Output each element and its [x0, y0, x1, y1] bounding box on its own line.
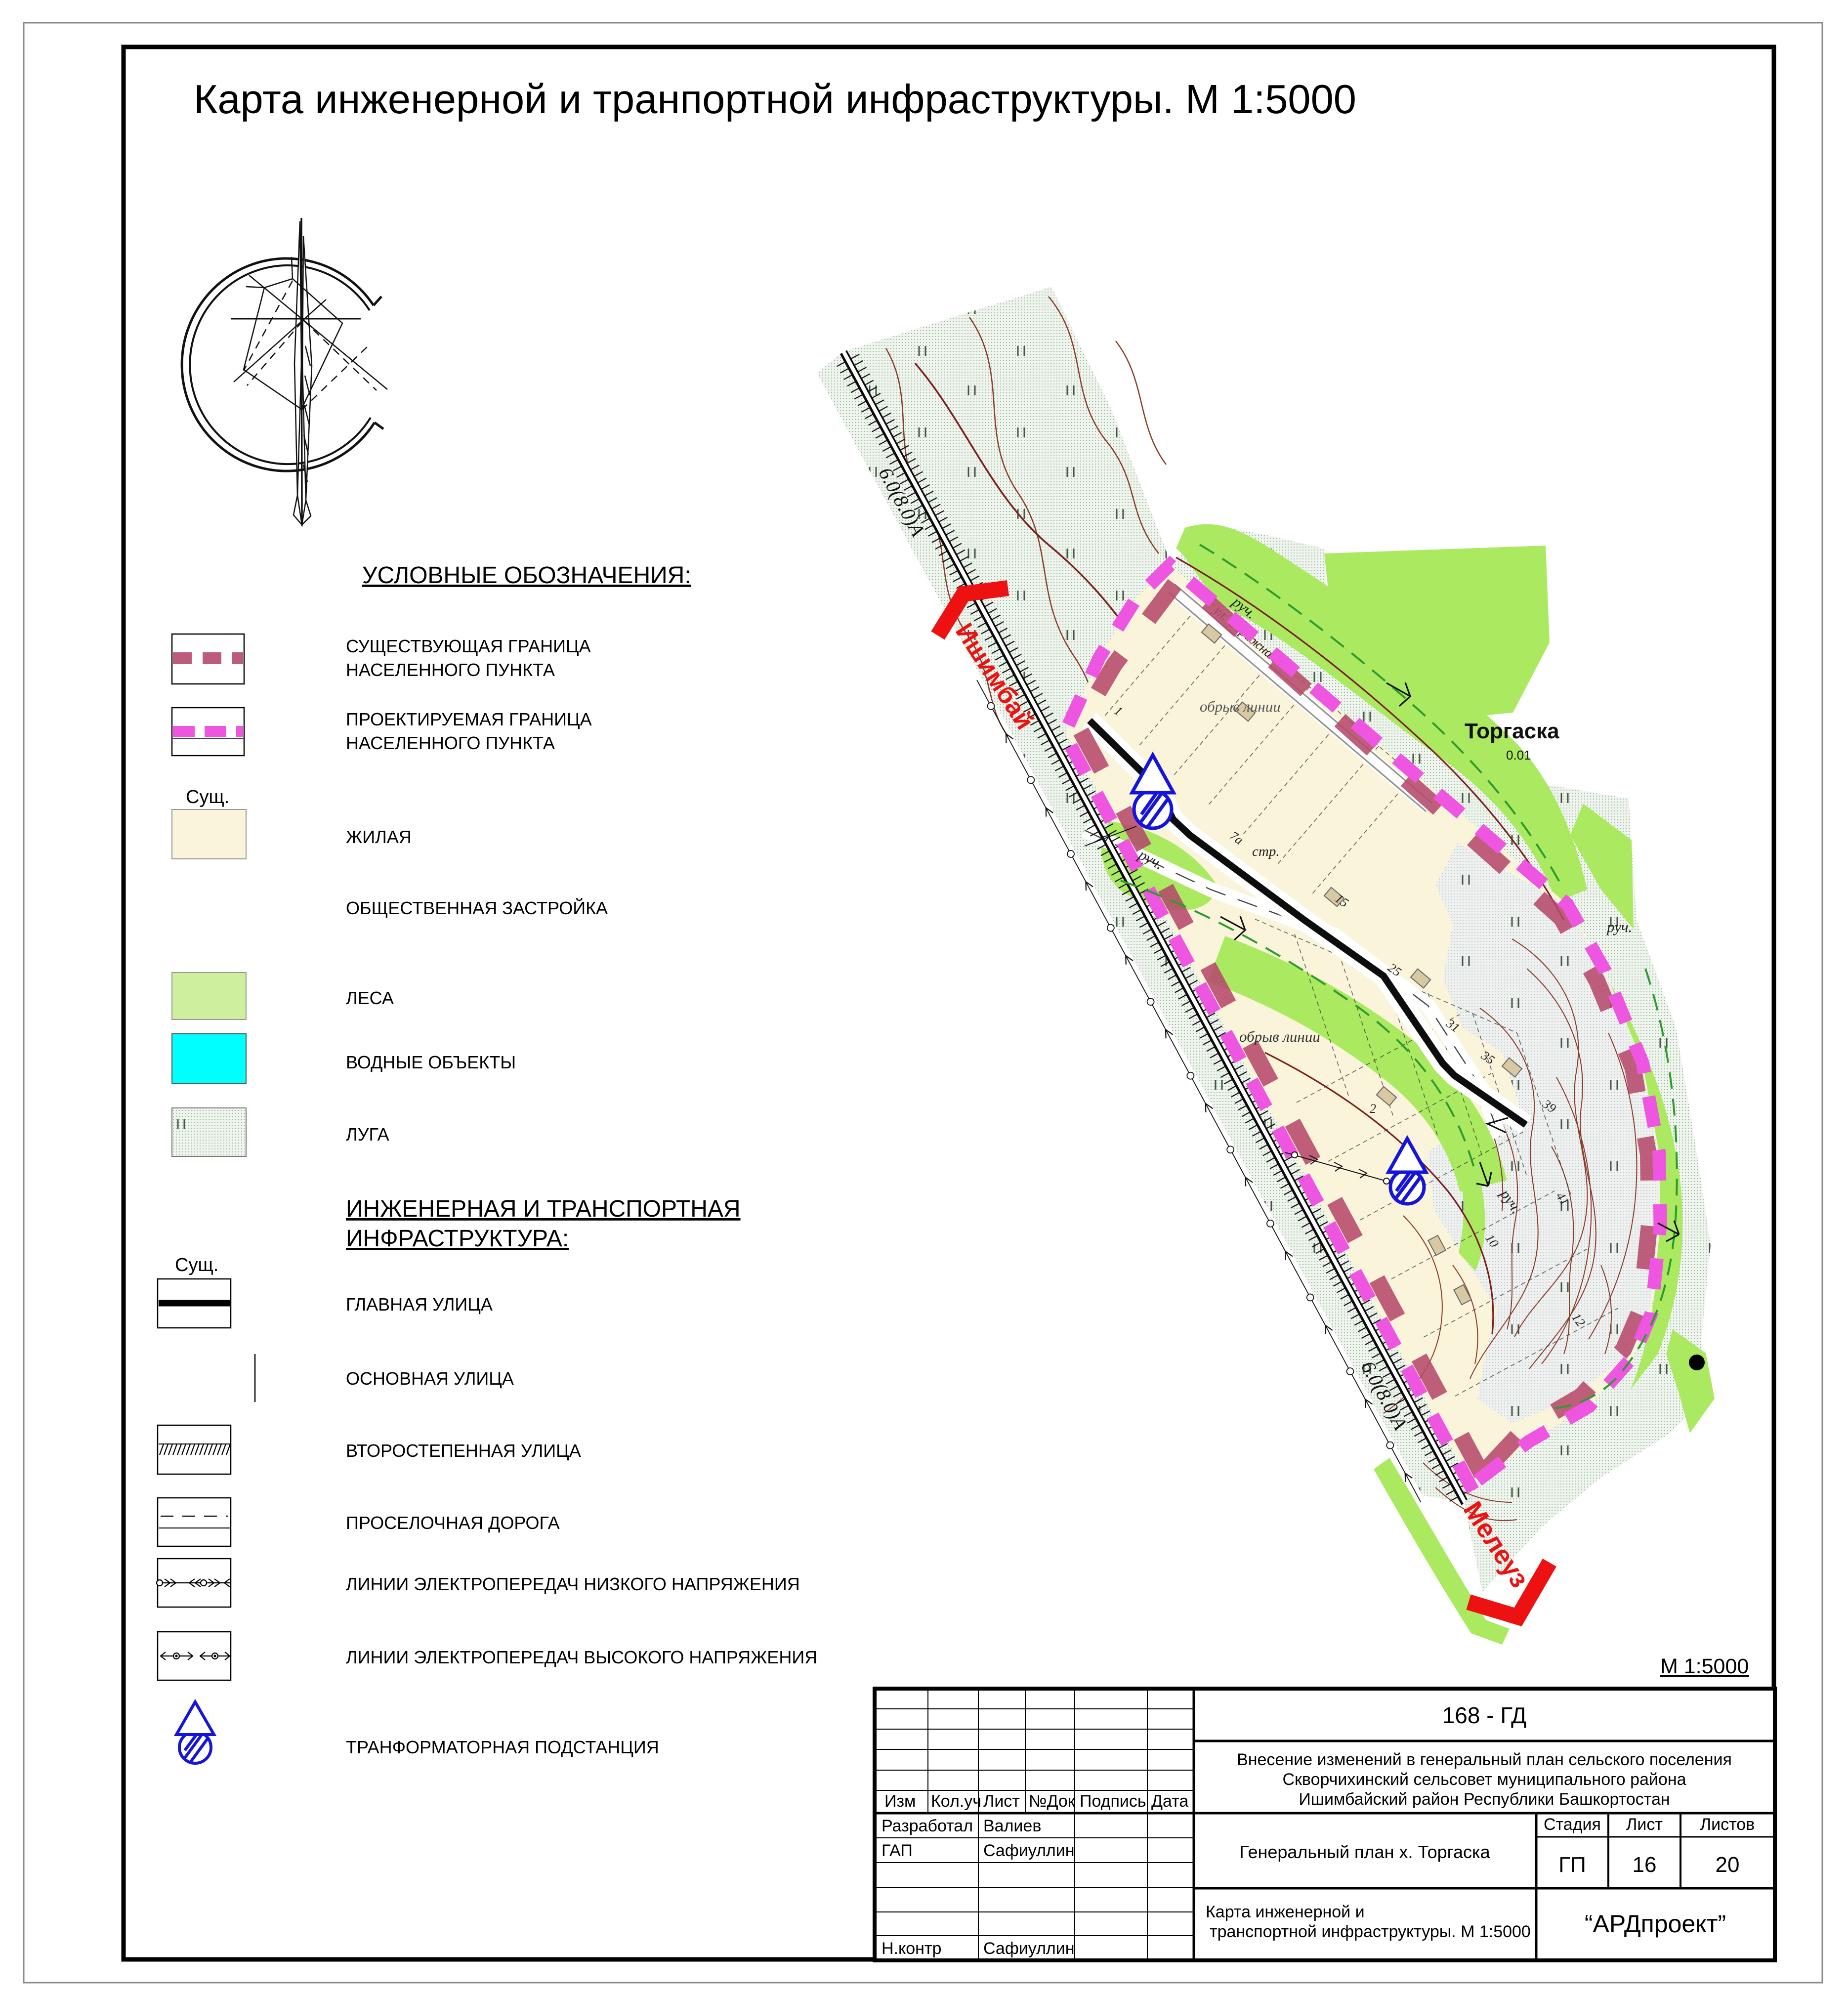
svg-text:ВОДНЫЕ ОБЪЕКТЫ: ВОДНЫЕ ОБЪЕКТЫ — [346, 1052, 516, 1072]
svg-text:транспортной инфраструктуры. М: транспортной инфраструктуры. М 1:5000 — [1210, 1922, 1531, 1941]
svg-text:ЛЕСА: ЛЕСА — [346, 988, 394, 1008]
svg-text:ИНЖЕНЕРНАЯ И ТРАНСПОРТНАЯ: ИНЖЕНЕРНАЯ И ТРАНСПОРТНАЯ — [346, 1196, 741, 1222]
svg-text:Ишимбайский район Республики Б: Ишимбайский район Республики Башкортоста… — [1299, 1790, 1670, 1809]
svg-text:Подпись: Подпись — [1080, 1792, 1146, 1811]
svg-text:Сафиуллин: Сафиуллин — [983, 1939, 1075, 1958]
svg-text:2: 2 — [1370, 1102, 1376, 1116]
svg-text:Генеральный план х. Торгаска: Генеральный план х. Торгаска — [1239, 1842, 1490, 1862]
svg-text:Стадия: Стадия — [1544, 1815, 1601, 1834]
svg-text:Листов: Листов — [1700, 1815, 1755, 1834]
svg-text:Сафиуллин: Сафиуллин — [983, 1841, 1075, 1860]
svg-text:НАСЕЛЕННОГО ПУНКТА: НАСЕЛЕННОГО ПУНКТА — [346, 660, 555, 680]
svg-text:М 1:5000: М 1:5000 — [1660, 1655, 1749, 1678]
svg-text:Карта инженерной и: Карта инженерной и — [1206, 1903, 1365, 1921]
svg-text:Сущ.: Сущ. — [186, 787, 229, 807]
svg-text:НАСЕЛЕННОГО ПУНКТА: НАСЕЛЕННОГО ПУНКТА — [346, 733, 555, 753]
svg-text:Сущ.: Сущ. — [175, 1255, 218, 1275]
svg-text:ИНФРАСТРУКТУРА:: ИНФРАСТРУКТУРА: — [346, 1226, 569, 1252]
svg-text:ЛУГА: ЛУГА — [346, 1124, 389, 1145]
svg-text:Лист: Лист — [1626, 1815, 1663, 1834]
svg-text:ТРАНФОРМАТОРНАЯ ПОДСТАНЦИЯ: ТРАНФОРМАТОРНАЯ ПОДСТАНЦИЯ — [346, 1737, 659, 1757]
svg-text:ЛИНИИ ЭЛЕКТРОПЕРЕДАЧ НИЗКОГО Н: ЛИНИИ ЭЛЕКТРОПЕРЕДАЧ НИЗКОГО НАПРЯЖЕНИЯ — [346, 1574, 800, 1594]
svg-text:20: 20 — [1716, 1853, 1740, 1877]
svg-text:обрыв линии: обрыв линии — [1239, 1028, 1320, 1045]
svg-text:Скворчихинский сельсовет муниц: Скворчихинский сельсовет муниципального … — [1282, 1770, 1686, 1789]
svg-text:Карта инженерной и транпортной: Карта инженерной и транпортной инфрастру… — [194, 76, 1356, 122]
svg-text:№Док: №Док — [1029, 1792, 1076, 1811]
svg-text:стр.: стр. — [1252, 844, 1280, 859]
svg-text:Н.контр: Н.контр — [882, 1939, 941, 1958]
svg-text:“АРДпроект”: “АРДпроект” — [1585, 1910, 1726, 1938]
svg-text:ОБЩЕСТВЕННАЯ ЗАСТРОЙКА: ОБЩЕСТВЕННАЯ ЗАСТРОЙКА — [346, 897, 608, 918]
svg-text:ГЛАВНАЯ УЛИЦА: ГЛАВНАЯ УЛИЦА — [346, 1294, 493, 1315]
svg-text:УСЛОВНЫЕ ОБОЗНАЧЕНИЯ:: УСЛОВНЫЕ ОБОЗНАЧЕНИЯ: — [362, 562, 691, 589]
svg-text:Лист: Лист — [983, 1792, 1020, 1811]
svg-text:Кол.уч: Кол.уч — [931, 1792, 981, 1811]
svg-text:обрыв линии: обрыв линии — [1200, 698, 1281, 715]
svg-text:ПРОСЕЛОЧНАЯ ДОРОГА: ПРОСЕЛОЧНАЯ ДОРОГА — [346, 1513, 560, 1533]
svg-text:Дата: Дата — [1151, 1792, 1188, 1811]
svg-text:16: 16 — [1633, 1853, 1657, 1877]
svg-text:Валиев: Валиев — [983, 1817, 1041, 1835]
svg-text:Внесение изменений в генеральн: Внесение изменений в генеральный план се… — [1237, 1750, 1732, 1769]
svg-text:ГП: ГП — [1558, 1853, 1586, 1877]
svg-text:СУЩЕСТВУЮЩАЯ ГРАНИЦА: СУЩЕСТВУЮЩАЯ ГРАНИЦА — [346, 636, 591, 656]
svg-text:ОСНОВНАЯ УЛИЦА: ОСНОВНАЯ УЛИЦА — [346, 1368, 514, 1389]
svg-text:Торгаска: Торгаска — [1465, 719, 1559, 743]
svg-text:Изм: Изм — [884, 1792, 916, 1811]
svg-text:Разработал: Разработал — [882, 1817, 973, 1835]
svg-text:руч.: руч. — [1606, 918, 1632, 935]
svg-text:0.01: 0.01 — [1506, 748, 1531, 763]
svg-text:ПРОЕКТИРУЕМАЯ ГРАНИЦА: ПРОЕКТИРУЕМАЯ ГРАНИЦА — [346, 709, 592, 729]
svg-text:ВТОРОСТЕПЕННАЯ УЛИЦА: ВТОРОСТЕПЕННАЯ УЛИЦА — [346, 1441, 581, 1461]
svg-text:ГАП: ГАП — [882, 1841, 913, 1860]
svg-text:ЛИНИИ ЭЛЕКТРОПЕРЕДАЧ ВЫСОКОГО: ЛИНИИ ЭЛЕКТРОПЕРЕДАЧ ВЫСОКОГО НАПРЯЖЕНИЯ — [346, 1647, 817, 1667]
svg-text:ЖИЛАЯ: ЖИЛАЯ — [346, 827, 412, 847]
svg-text:168 - ГД: 168 - ГД — [1442, 1702, 1527, 1728]
